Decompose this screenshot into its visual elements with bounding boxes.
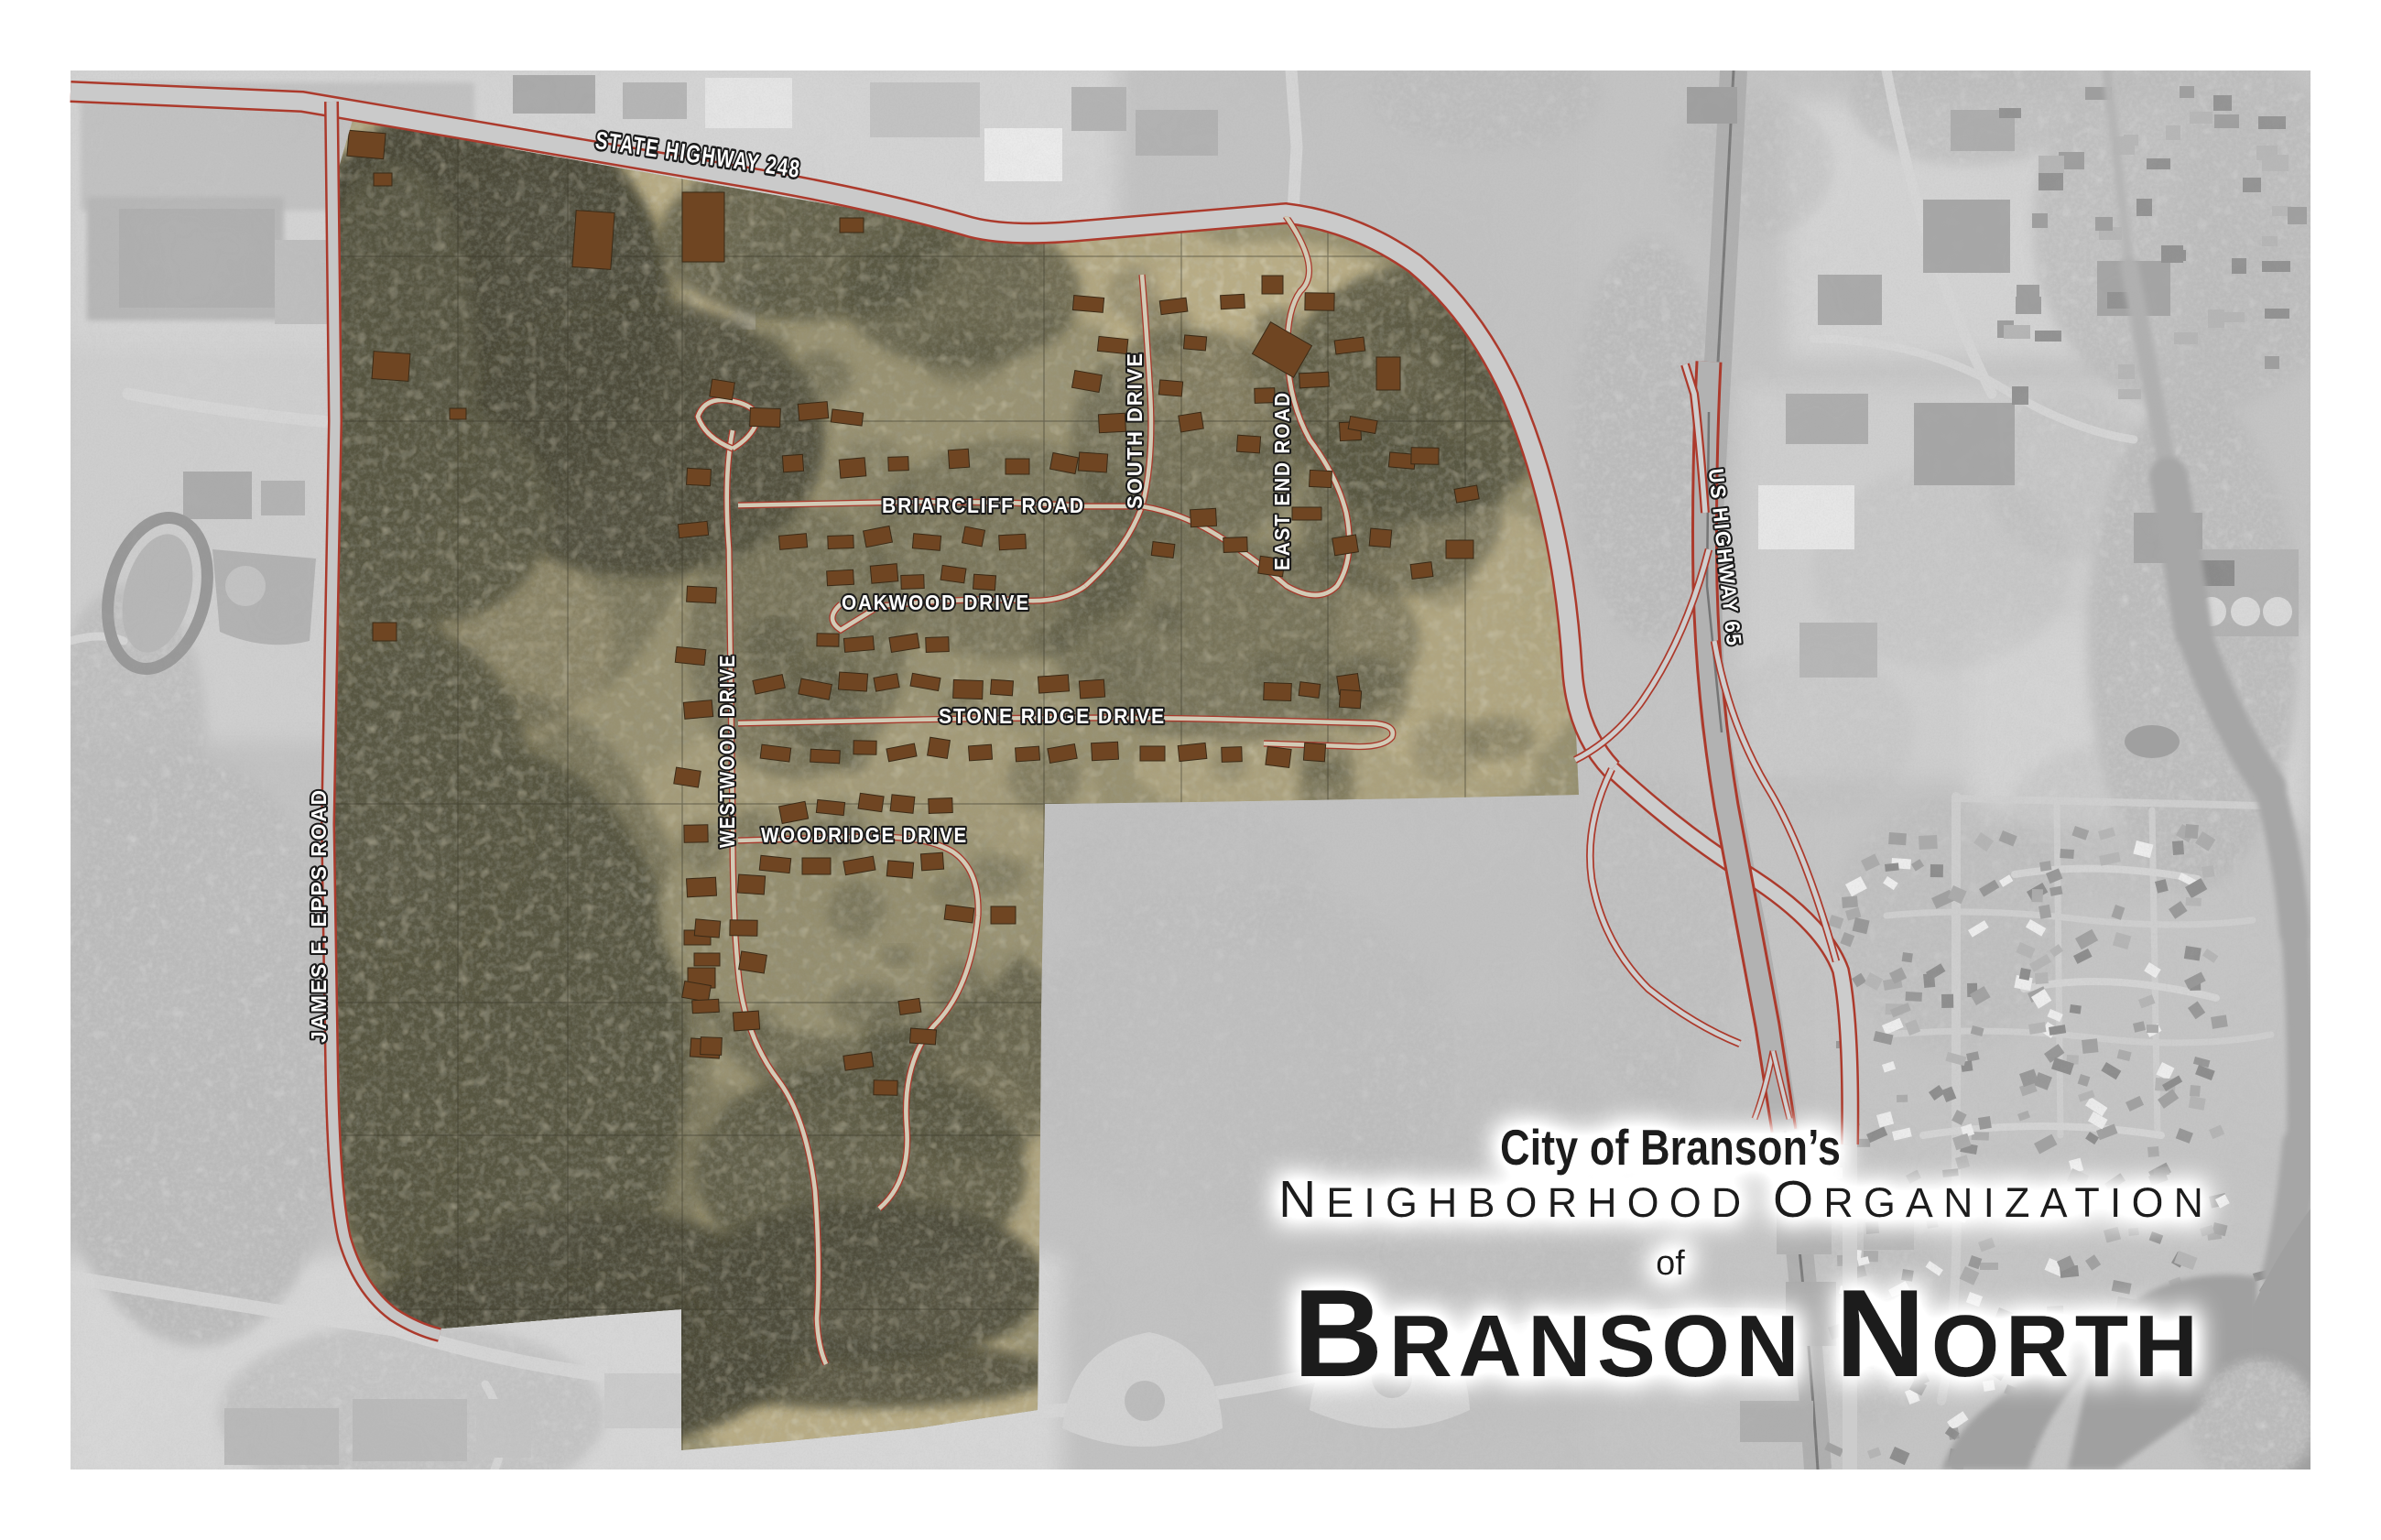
svg-text:of: of bbox=[1656, 1244, 1685, 1283]
svg-text:OAKWOOD DRIVE: OAKWOOD DRIVE bbox=[842, 591, 1030, 614]
svg-text:WESTWOOD DRIVE: WESTWOOD DRIVE bbox=[715, 654, 739, 848]
svg-text:STONE RIDGE DRIVE: STONE RIDGE DRIVE bbox=[939, 704, 1166, 728]
svg-text:BRIARCLIFF ROAD: BRIARCLIFF ROAD bbox=[882, 493, 1085, 517]
svg-text:WOODRIDGE DRIVE: WOODRIDGE DRIVE bbox=[761, 823, 968, 847]
svg-text:JAMES F. EPPS ROAD: JAMES F. EPPS ROAD bbox=[307, 788, 331, 1043]
svg-text:SOUTH DRIVE: SOUTH DRIVE bbox=[1123, 352, 1147, 509]
svg-text:City of Branson’s: City of Branson’s bbox=[1500, 1119, 1841, 1176]
svg-text:EAST END ROAD: EAST END ROAD bbox=[1270, 391, 1294, 570]
